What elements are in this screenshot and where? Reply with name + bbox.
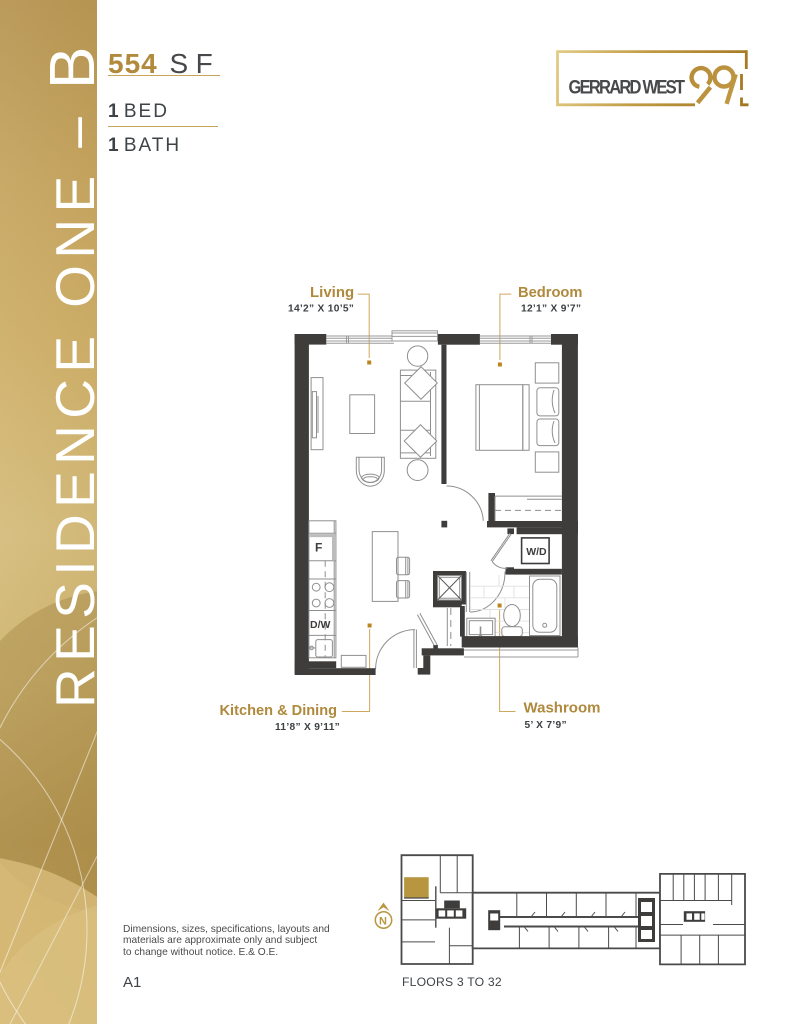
svg-text:14’2” X 10’5”: 14’2” X 10’5” bbox=[288, 304, 354, 315]
svg-text:Bedroom: Bedroom bbox=[518, 285, 582, 301]
svg-text:Living: Living bbox=[310, 284, 354, 301]
svg-text:12’1” X 9’7”: 12’1” X 9’7” bbox=[521, 304, 581, 315]
svg-text:Washroom: Washroom bbox=[524, 700, 601, 717]
svg-text:W/D: W/D bbox=[526, 546, 547, 558]
svg-text:N: N bbox=[379, 916, 387, 928]
svg-text:F: F bbox=[315, 541, 322, 555]
svg-text:Kitchen & Dining: Kitchen & Dining bbox=[220, 703, 338, 719]
svg-text:5’ X 7’9”: 5’ X 7’9” bbox=[525, 720, 567, 731]
svg-text:11’8” X 9’11”: 11’8” X 9’11” bbox=[275, 722, 340, 733]
svg-text:D/W: D/W bbox=[310, 619, 331, 631]
